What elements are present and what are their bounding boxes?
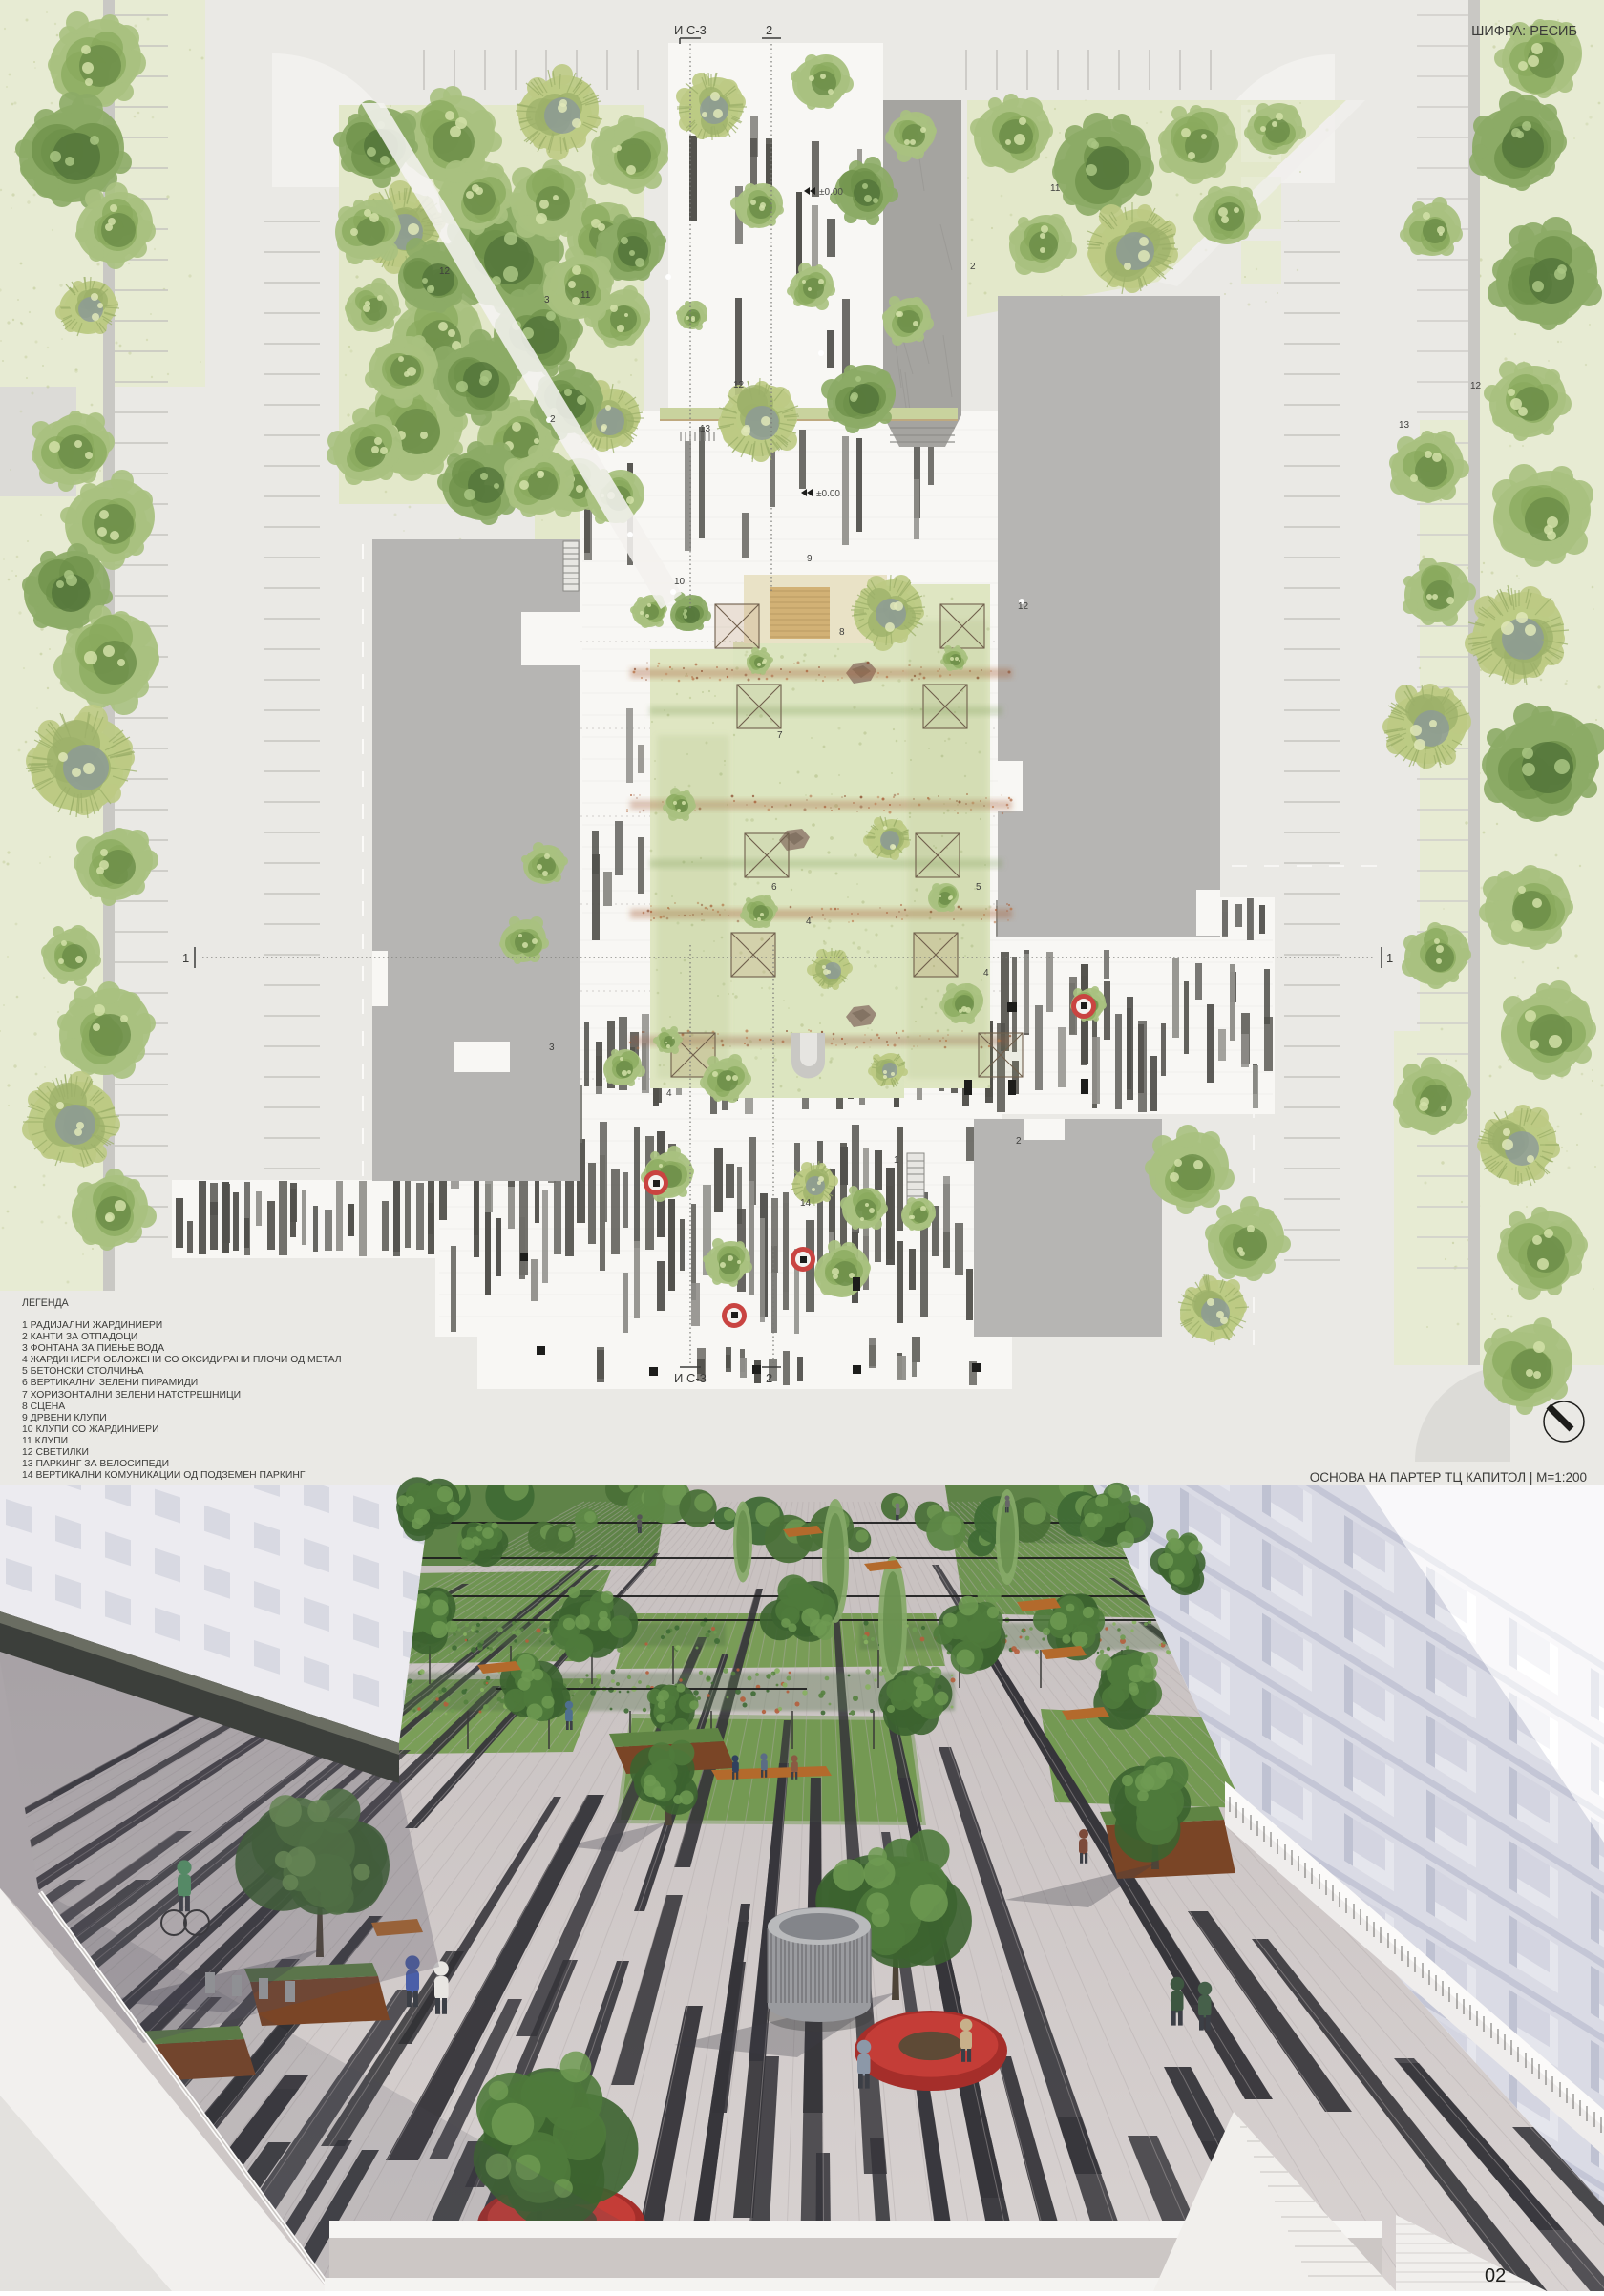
svg-text:±0.00: ±0.00 — [819, 187, 843, 198]
svg-text:9 ДРВЕНИ КЛУПИ: 9 ДРВЕНИ КЛУПИ — [22, 1413, 107, 1423]
svg-text:3: 3 — [544, 295, 550, 305]
svg-text:13: 13 — [1399, 420, 1410, 431]
svg-text:3 ФОНТАНА ЗА ПИЕЊЕ ВОДА: 3 ФОНТАНА ЗА ПИЕЊЕ ВОДА — [22, 1343, 164, 1354]
svg-text:11: 11 — [580, 290, 591, 301]
svg-text:1: 1 — [894, 1155, 899, 1166]
svg-text:2: 2 — [766, 23, 772, 37]
svg-text:12 СВЕТИЛКИ: 12 СВЕТИЛКИ — [22, 1447, 89, 1458]
svg-text:5: 5 — [976, 882, 981, 893]
svg-text:3: 3 — [549, 1043, 555, 1053]
svg-text:7: 7 — [777, 730, 783, 741]
svg-text:2: 2 — [970, 262, 976, 272]
svg-text:4: 4 — [983, 968, 989, 979]
svg-text:6: 6 — [771, 882, 777, 893]
svg-text:4 ЖАРДИНИЕРИ ОБЛОЖЕНИ СО ОКСИД: 4 ЖАРДИНИЕРИ ОБЛОЖЕНИ СО ОКСИДИРАНИ ПЛОЧ… — [22, 1355, 342, 1365]
svg-text:8: 8 — [839, 627, 845, 638]
svg-text:1: 1 — [182, 951, 189, 965]
svg-text:12: 12 — [439, 266, 451, 277]
svg-text:5 БЕТОНСКИ СТОЛЧИЊА: 5 БЕТОНСКИ СТОЛЧИЊА — [22, 1366, 144, 1377]
svg-text:4: 4 — [806, 916, 812, 927]
svg-text:ШИФРА: РЕСИБ: ШИФРА: РЕСИБ — [1471, 24, 1577, 39]
svg-text:12: 12 — [1018, 601, 1029, 612]
svg-text:12: 12 — [1470, 381, 1482, 391]
svg-text:4: 4 — [666, 1088, 672, 1099]
svg-text:7 ХОРИЗОНТАЛНИ ЗЕЛЕНИ НАТСТРЕШ: 7 ХОРИЗОНТАЛНИ ЗЕЛЕНИ НАТСТРЕШНИЦИ — [22, 1390, 241, 1401]
svg-text:И С-3: И С-3 — [674, 1371, 707, 1385]
svg-text:6 ВЕРТИКАЛНИ ЗЕЛЕНИ ПИРАМИДИ: 6 ВЕРТИКАЛНИ ЗЕЛЕНИ ПИРАМИДИ — [22, 1378, 198, 1388]
svg-text:10: 10 — [674, 577, 686, 587]
svg-text:11 КЛУПИ: 11 КЛУПИ — [22, 1436, 68, 1446]
svg-text:2: 2 — [550, 414, 556, 425]
svg-text:13 ПАРКИНГ ЗА ВЕЛОСИПЕДИ: 13 ПАРКИНГ ЗА ВЕЛОСИПЕДИ — [22, 1459, 169, 1469]
svg-text:2: 2 — [1016, 1136, 1022, 1147]
svg-text:14 ВЕРТИКАЛНИ КОМУНИКАЦИИ ОД П: 14 ВЕРТИКАЛНИ КОМУНИКАЦИИ ОД ПОДЗЕМЕН ПА… — [22, 1470, 306, 1481]
svg-text:ЛЕГЕНДА: ЛЕГЕНДА — [22, 1297, 70, 1309]
svg-text:2 КАНТИ ЗА ОТПАДОЦИ: 2 КАНТИ ЗА ОТПАДОЦИ — [22, 1332, 137, 1342]
svg-text:И С-3: И С-3 — [674, 23, 707, 37]
svg-text:11: 11 — [1050, 183, 1061, 194]
svg-text:1: 1 — [1386, 951, 1393, 965]
svg-text:14: 14 — [800, 1198, 812, 1209]
svg-text:13: 13 — [700, 424, 711, 434]
svg-text:12: 12 — [733, 380, 745, 390]
svg-text:ОСНОВА НА ПАРТЕР ТЦ КАПИТОЛ |: ОСНОВА НА ПАРТЕР ТЦ КАПИТОЛ | М=1:200 — [1310, 1470, 1587, 1485]
svg-text:2: 2 — [766, 1371, 772, 1385]
svg-text:1 РАДИЈАЛНИ ЖАРДИНИЕРИ: 1 РАДИЈАЛНИ ЖАРДИНИЕРИ — [22, 1320, 162, 1331]
svg-text:8 СЦЕНА: 8 СЦЕНА — [22, 1401, 65, 1412]
svg-text:±0.00: ±0.00 — [816, 489, 840, 499]
svg-text:10 КЛУПИ СО ЖАРДИНИЕРИ: 10 КЛУПИ СО ЖАРДИНИЕРИ — [22, 1424, 159, 1435]
svg-text:9: 9 — [807, 554, 813, 564]
